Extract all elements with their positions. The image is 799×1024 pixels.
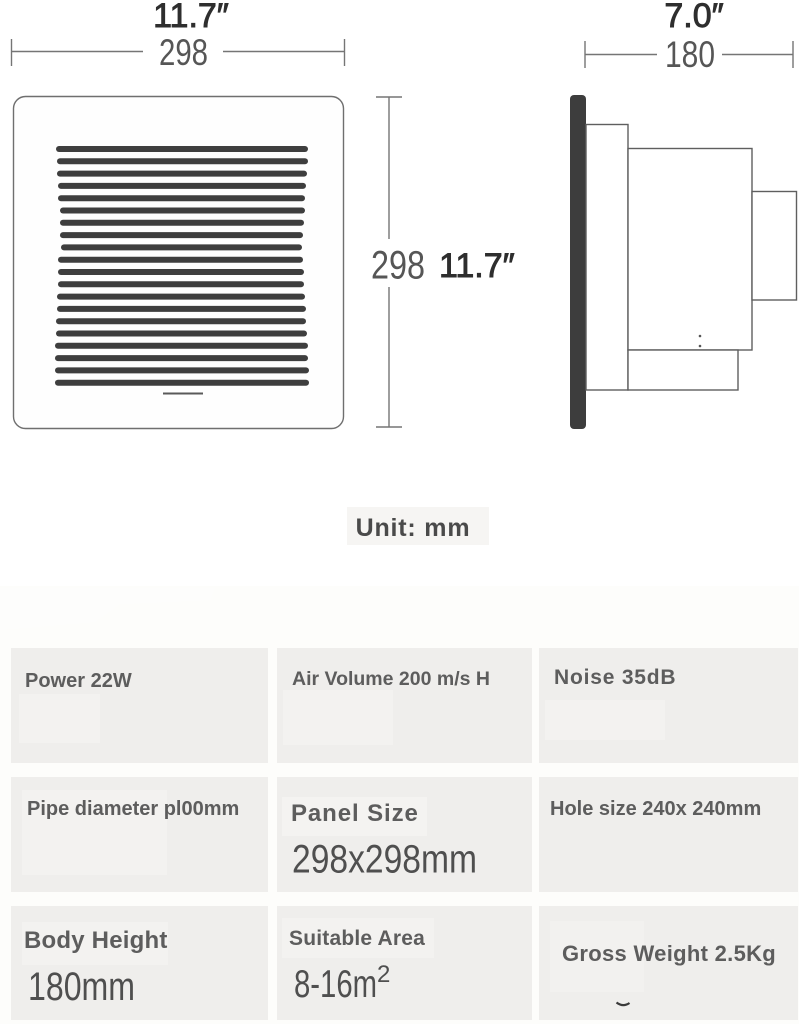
svg-text:11.7″: 11.7″ bbox=[153, 0, 229, 35]
svg-text:Pipe diameter pl00mm: Pipe diameter pl00mm bbox=[27, 798, 239, 820]
svg-text:Air Volume 200 m/s H: Air Volume 200 m/s H bbox=[292, 668, 490, 690]
svg-text:Panel Size: Panel Size bbox=[291, 800, 419, 827]
svg-text:298: 298 bbox=[371, 244, 425, 288]
svg-text:2: 2 bbox=[377, 961, 390, 988]
svg-text:7.0″: 7.0″ bbox=[664, 0, 723, 35]
svg-text:11.7″: 11.7″ bbox=[439, 247, 515, 285]
svg-text:8-16m: 8-16m bbox=[294, 963, 377, 1006]
svg-text:Gross Weight 2.5Kg: Gross Weight 2.5Kg bbox=[562, 941, 776, 966]
svg-text:Suitable Area: Suitable Area bbox=[289, 927, 425, 950]
svg-text:298: 298 bbox=[159, 32, 208, 73]
svg-text:Unit: mm: Unit: mm bbox=[356, 514, 471, 542]
svg-text:Power 22W: Power 22W bbox=[25, 670, 132, 692]
svg-text:Hole size 240x 240mm: Hole size 240x 240mm bbox=[550, 798, 761, 820]
svg-text:Body Height: Body Height bbox=[24, 927, 168, 954]
svg-text:180: 180 bbox=[665, 34, 715, 75]
svg-text:180mm: 180mm bbox=[28, 965, 135, 1009]
svg-text:Noise 35dB: Noise 35dB bbox=[554, 666, 676, 689]
svg-text:298x298mm: 298x298mm bbox=[292, 838, 477, 882]
